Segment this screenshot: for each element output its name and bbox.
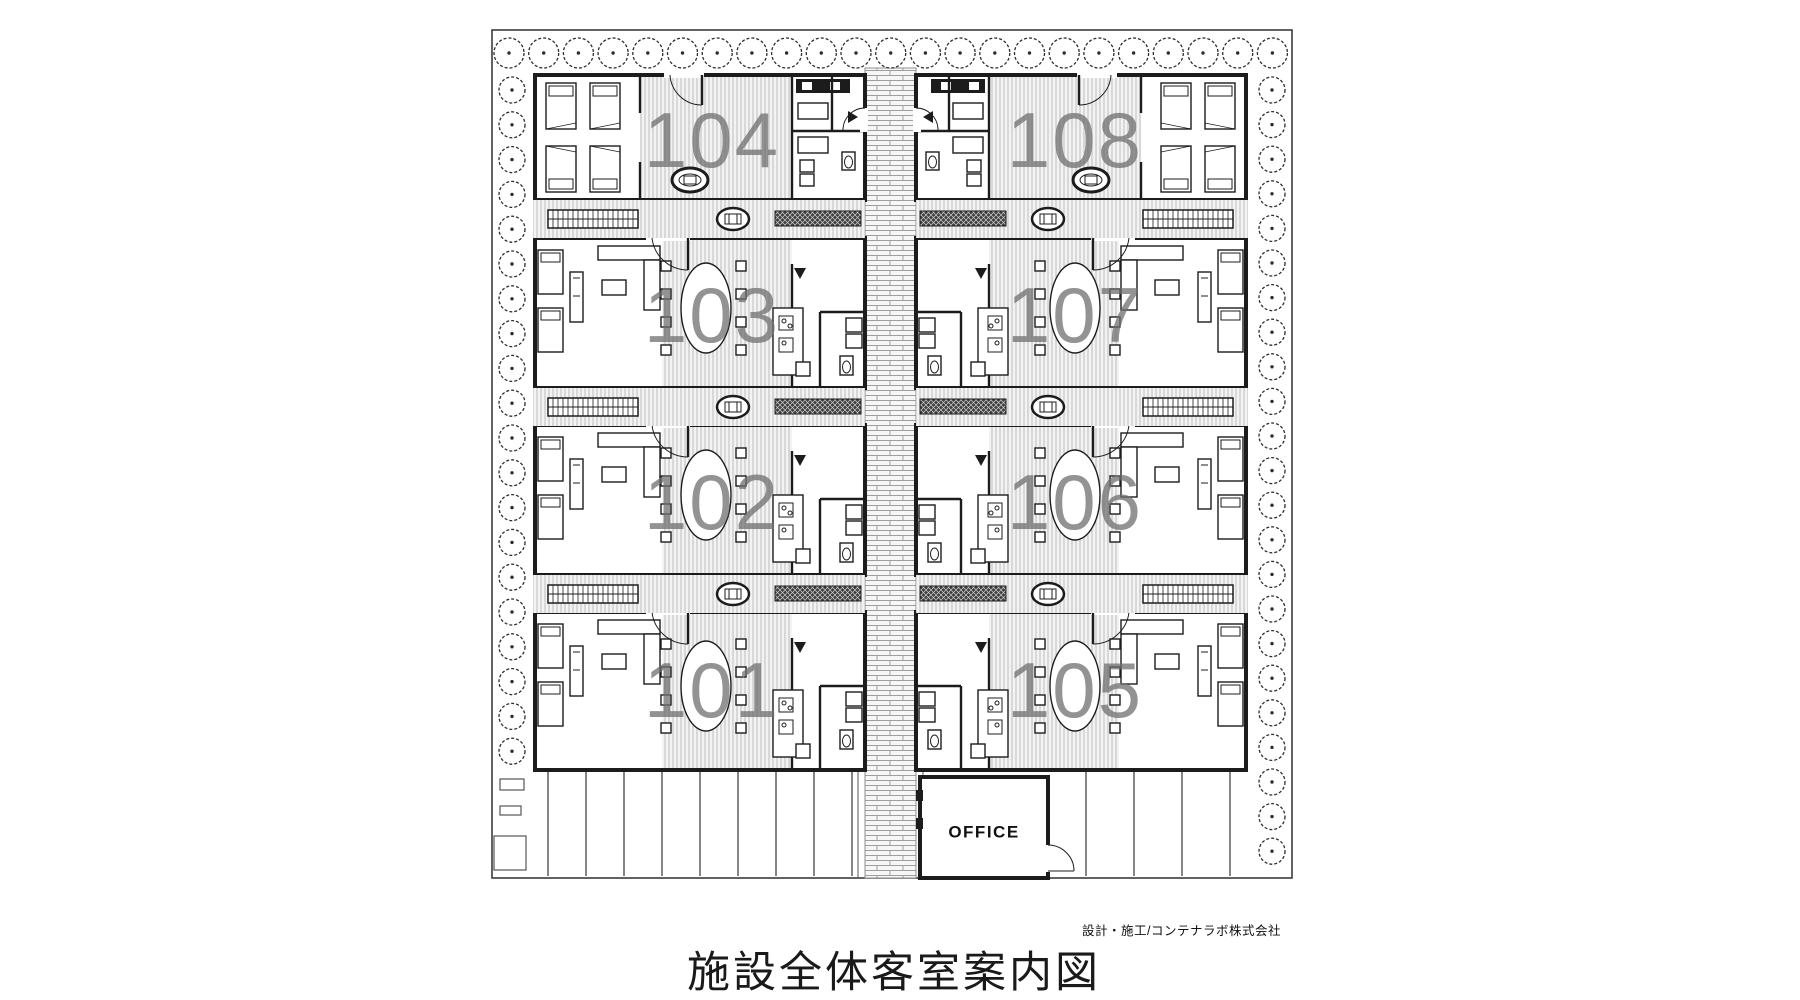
tree-icon: [1259, 215, 1285, 241]
tree-icon: [1049, 38, 1079, 68]
tree-icon: [499, 634, 525, 660]
tree-icon: [1259, 665, 1285, 691]
tree-icon: [1259, 112, 1285, 138]
tree-icon: [1259, 769, 1285, 795]
plan-caption: 施設全体客室案内図: [687, 938, 1101, 1000]
tree-icon: [1259, 354, 1285, 380]
tree-icon: [499, 425, 525, 451]
tree-icon: [499, 112, 525, 138]
tree-icon: [1153, 38, 1183, 68]
tree-icon: [1259, 181, 1285, 207]
tree-icon: [1259, 146, 1285, 172]
tree-icon: [1257, 38, 1287, 68]
floor-plan-page: OFFICE101102103104105106107108 施設全体客室案内図…: [0, 0, 1800, 1000]
tree-icon: [563, 38, 593, 68]
tree-row-top: [494, 38, 1287, 68]
tree-icon: [1259, 319, 1285, 345]
tree-icon: [499, 390, 525, 416]
tree-icon: [499, 495, 525, 521]
tree-icon: [499, 355, 525, 381]
tree-icon: [772, 38, 802, 68]
tree-icon: [499, 599, 525, 625]
tree-icon: [499, 703, 525, 729]
tree-icon: [1259, 631, 1285, 657]
tree-icon: [598, 38, 628, 68]
room-label-104: 104: [644, 96, 780, 184]
central-corridor: [858, 68, 923, 878]
tree-icon: [499, 216, 525, 242]
tree-icon: [633, 38, 663, 68]
tree-icon: [499, 286, 525, 312]
tree-icon: [1259, 700, 1285, 726]
tree-icon: [1119, 38, 1149, 68]
tree-icon: [499, 529, 525, 555]
tree-icon: [1259, 734, 1285, 760]
design-credit: 設計・施工/コンテナラボ株式会社: [1082, 920, 1281, 939]
tree-icon: [1259, 838, 1285, 864]
tree-icon: [1259, 492, 1285, 518]
tree-icon: [529, 38, 559, 68]
tree-icon: [945, 38, 975, 68]
tree-icon: [499, 460, 525, 486]
tree-icon: [1259, 804, 1285, 830]
tree-column-right: [1259, 77, 1285, 864]
room-label-107: 107: [1007, 271, 1143, 359]
tree-icon: [806, 38, 836, 68]
tree-icon: [499, 321, 525, 347]
tree-icon: [910, 38, 940, 68]
tree-icon: [1259, 423, 1285, 449]
tree-icon: [1259, 561, 1285, 587]
room-label-101: 101: [644, 646, 780, 734]
tree-icon: [499, 738, 525, 764]
room-label-106: 106: [1007, 458, 1143, 546]
room-label-108: 108: [1007, 96, 1143, 184]
tree-icon: [876, 38, 906, 68]
tree-icon: [1084, 38, 1114, 68]
room-label-105: 105: [1007, 646, 1143, 734]
tree-icon: [841, 38, 871, 68]
tree-icon: [702, 38, 732, 68]
office-label: OFFICE: [948, 823, 1019, 842]
tree-icon: [1259, 285, 1285, 311]
tree-icon: [1259, 77, 1285, 103]
tree-icon: [494, 38, 524, 68]
tree-icon: [499, 147, 525, 173]
tree-icon: [499, 564, 525, 590]
tree-icon: [499, 77, 525, 103]
room-label-103: 103: [644, 271, 780, 359]
tree-icon: [1223, 38, 1253, 68]
floor-plan-drawing: OFFICE101102103104105106107108: [0, 0, 1800, 1000]
tree-icon: [1259, 527, 1285, 553]
tree-icon: [499, 251, 525, 277]
tree-icon: [1188, 38, 1218, 68]
tree-icon: [668, 38, 698, 68]
tree-icon: [1259, 458, 1285, 484]
room-label-102: 102: [644, 458, 780, 546]
tree-icon: [737, 38, 767, 68]
tree-icon: [499, 181, 525, 207]
tree-icon: [980, 38, 1010, 68]
tree-icon: [1259, 250, 1285, 276]
tree-icon: [1259, 596, 1285, 622]
tree-icon: [499, 669, 525, 695]
tree-icon: [1015, 38, 1045, 68]
tree-icon: [1259, 388, 1285, 414]
